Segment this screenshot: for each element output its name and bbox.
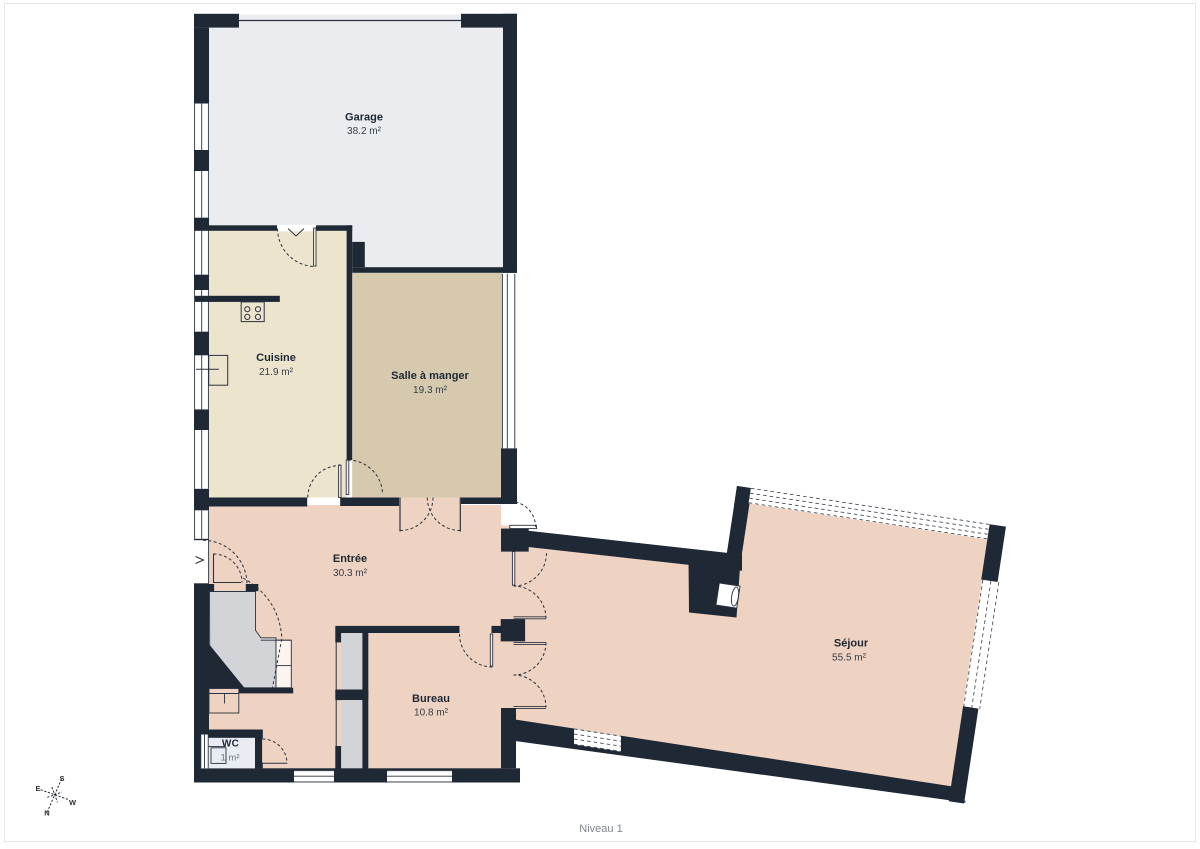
- svg-text:WC: WC: [222, 739, 239, 750]
- svg-text:S: S: [59, 774, 64, 783]
- svg-text:Bureau: Bureau: [412, 693, 450, 705]
- svg-text:38.2 m²: 38.2 m²: [347, 126, 382, 137]
- svg-text:30.3 m²: 30.3 m²: [333, 568, 368, 579]
- svg-text:Séjour: Séjour: [834, 638, 869, 650]
- svg-text:Niveau 1: Niveau 1: [579, 823, 622, 835]
- svg-text:W: W: [69, 798, 77, 807]
- svg-text:55.5 m²: 55.5 m²: [832, 653, 867, 664]
- svg-text:Garage: Garage: [345, 112, 383, 124]
- svg-text:N: N: [44, 809, 49, 818]
- svg-text:21.9 m²: 21.9 m²: [259, 367, 294, 378]
- svg-text:Salle à manger: Salle à manger: [391, 370, 469, 382]
- svg-text:Entrée: Entrée: [333, 553, 367, 565]
- svg-text:Cuisine: Cuisine: [256, 352, 296, 364]
- svg-text:19.3 m²: 19.3 m²: [413, 385, 448, 396]
- svg-text:10.8 m²: 10.8 m²: [414, 708, 449, 719]
- svg-text:1 m²: 1 m²: [221, 753, 240, 764]
- svg-text:E: E: [35, 784, 40, 793]
